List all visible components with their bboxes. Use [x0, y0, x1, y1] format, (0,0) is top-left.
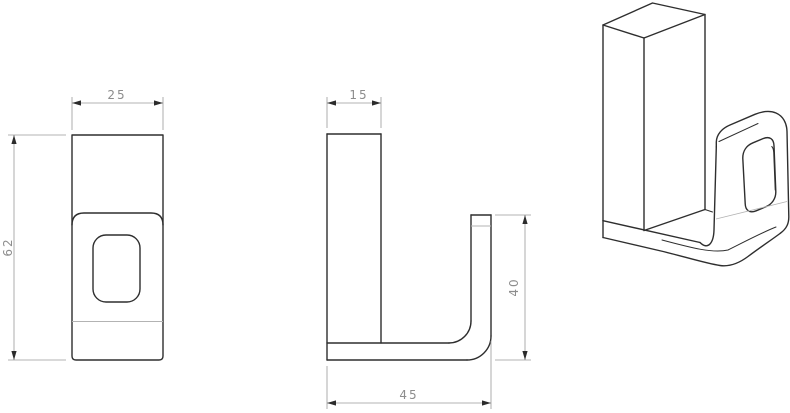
side-inner-fillet [449, 321, 471, 343]
front-outline [72, 135, 163, 360]
side-outer-fillet [467, 336, 491, 360]
side-hook-height-dimension: 40 [495, 215, 531, 360]
iso-strip-front-top-edge [603, 221, 700, 243]
iso-block-top-face [603, 3, 705, 38]
iso-slot-outline [743, 138, 776, 212]
dimension-label-side-hook-height: 40 [507, 277, 521, 296]
side-length-dimension: 45 [327, 341, 491, 409]
arrowhead-top [11, 135, 16, 144]
arrowhead-right [482, 400, 491, 405]
iso-plate-tangent-line [716, 202, 787, 220]
dimension-label-front-width: 25 [107, 88, 126, 102]
dimension-label-side-length: 45 [399, 388, 418, 402]
arrowhead-top [522, 215, 527, 224]
side-thickness-dimension: 15 [327, 88, 381, 128]
front-width-dimension: 25 [72, 88, 163, 130]
front-plate-top-edge [72, 213, 163, 225]
front-height-dimension: 62 [1, 135, 66, 360]
front-slot-outline [93, 235, 140, 302]
drawing-canvas: 25 62 15 [0, 0, 790, 413]
dimension-label-side-thickness: 15 [349, 88, 368, 102]
technical-drawing: 25 62 15 [0, 0, 790, 413]
iso-strip-back-edge-stub [705, 210, 713, 213]
arrowhead-left [327, 400, 336, 405]
arrowhead-right [154, 100, 163, 105]
dimension-label-front-height: 62 [1, 237, 15, 256]
side-view: 15 40 45 [327, 88, 531, 409]
iso-inner-curve-edge [700, 147, 716, 246]
arrowhead-bottom [11, 351, 16, 360]
iso-bottom-band-far-edge [662, 227, 776, 251]
iso-plate-top-inner-edge [719, 124, 758, 142]
arrowhead-left [327, 100, 336, 105]
front-view: 25 62 [1, 88, 163, 360]
isometric-view [603, 3, 789, 266]
arrowhead-bottom [522, 351, 527, 360]
arrowhead-right [372, 100, 381, 105]
iso-outer-silhouette [603, 111, 789, 265]
iso-block-bottom-seam [644, 210, 705, 231]
arrowhead-left [72, 100, 81, 105]
